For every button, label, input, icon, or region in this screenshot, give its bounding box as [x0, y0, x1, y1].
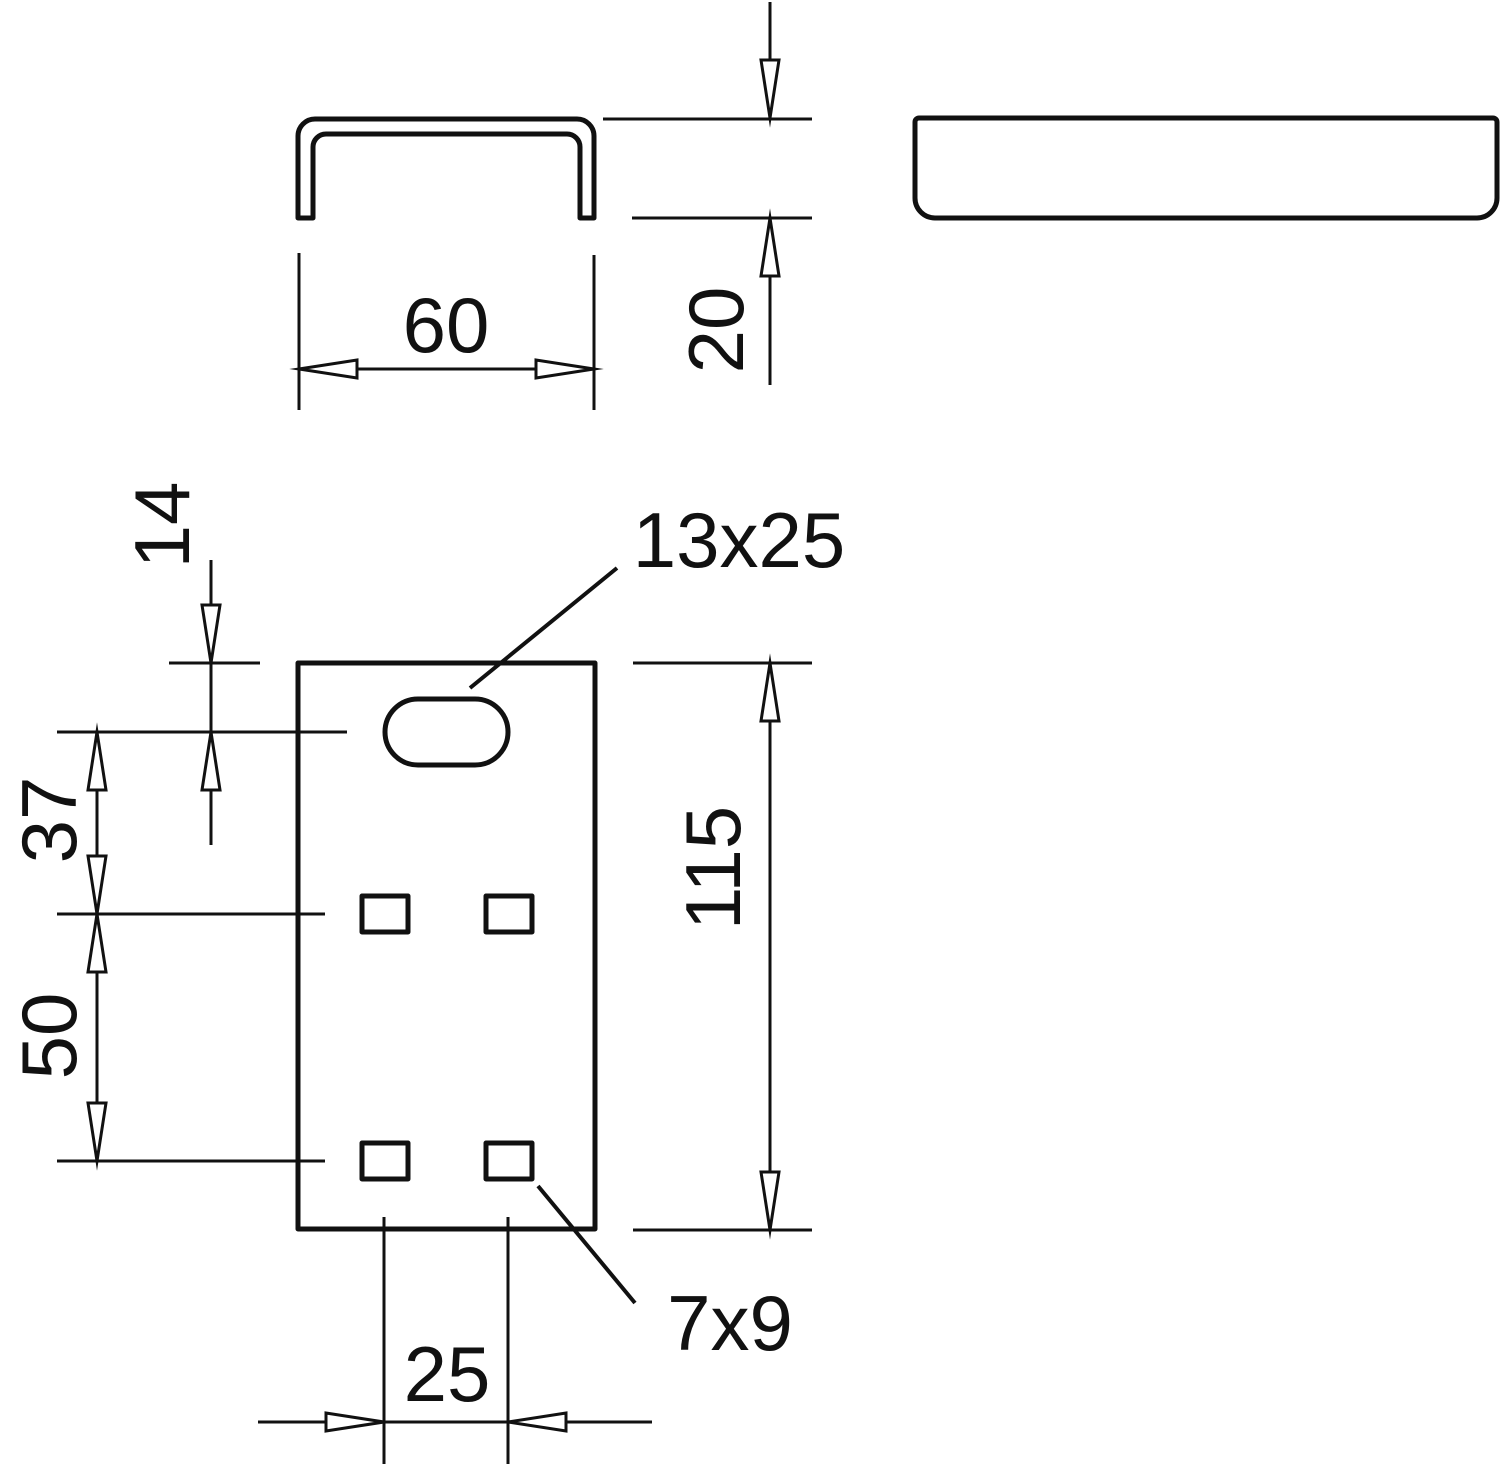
- hole-row1-right: [486, 896, 532, 932]
- height-arrow-top: [761, 60, 779, 118]
- plate-height-label: 115: [669, 806, 757, 930]
- slot-hole: [385, 699, 508, 765]
- dim25-arrow-left: [326, 1413, 384, 1431]
- technical-drawing-page: 60 20 14 37 50 115 25 13x25: [0, 0, 1500, 1464]
- hole-spacing-label: 25: [404, 1330, 491, 1418]
- channel-height-label: 20: [672, 287, 760, 374]
- u-channel-cross-section-outline: [298, 119, 594, 218]
- slot-size-label: 13x25: [633, 496, 846, 584]
- channel-width-label: 60: [403, 281, 490, 369]
- width-arrow-left: [299, 360, 357, 378]
- dim50-arrow-bottom: [88, 1103, 106, 1161]
- dim25-arrow-right: [508, 1413, 566, 1431]
- hole-row2-left: [362, 1143, 408, 1179]
- dim14-arrow-bottom: [202, 732, 220, 790]
- hole-size-label: 7x9: [667, 1279, 793, 1367]
- dimension-drawing: 60 20 14 37 50 115 25 13x25: [0, 0, 1500, 1464]
- slot-to-first-row-label: 37: [5, 777, 93, 864]
- hole-row2-right: [486, 1143, 532, 1179]
- dim14-arrow-top: [202, 605, 220, 663]
- dim50-arrow-top: [88, 914, 106, 972]
- row-to-row-label: 50: [5, 993, 93, 1080]
- side-view-outline: [915, 118, 1497, 218]
- dim115-arrow-bottom: [761, 1172, 779, 1230]
- dim115-arrow-top: [761, 663, 779, 721]
- height-arrow-bottom: [761, 218, 779, 276]
- top-to-slot-label: 14: [118, 482, 206, 569]
- width-arrow-right: [536, 360, 594, 378]
- hole-row1-left: [362, 896, 408, 932]
